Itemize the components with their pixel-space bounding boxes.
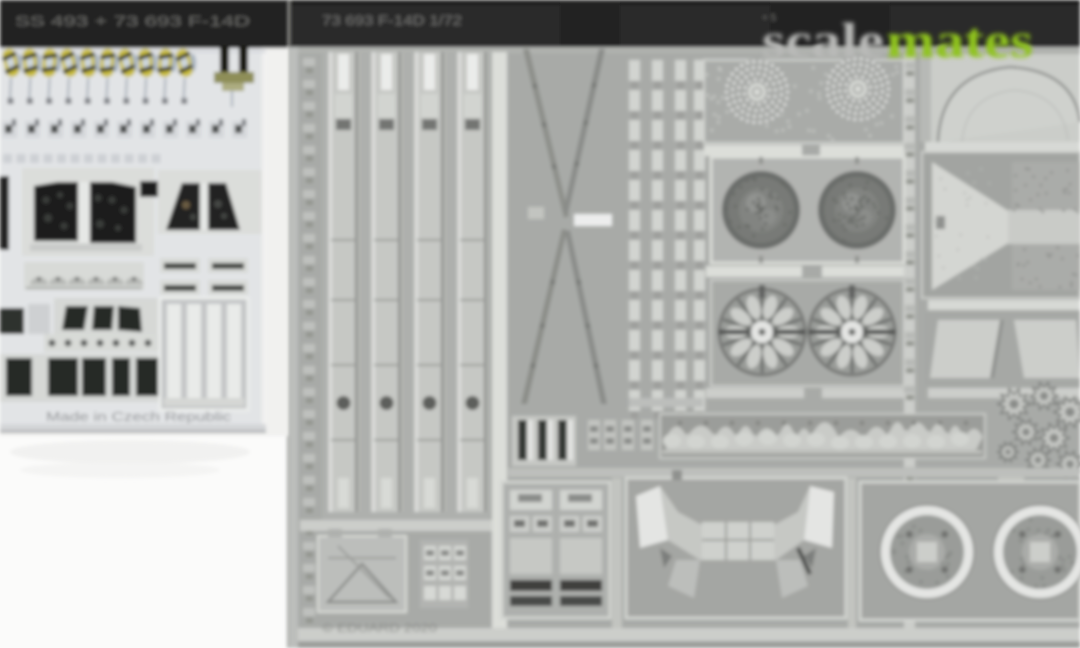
svg-text:scale: scale: [762, 12, 884, 68]
svg-text:73 693 F-14D 1/72: 73 693 F-14D 1/72: [322, 12, 462, 28]
svg-text:mates: mates: [886, 12, 1033, 68]
svg-text:© EDUARD 2020: © EDUARD 2020: [322, 621, 437, 635]
svg-text:SS 493 + 73 693 F-14D: SS 493 + 73 693 F-14D: [15, 13, 250, 30]
svg-text:Made in Czech Republic: Made in Czech Republic: [46, 409, 232, 424]
